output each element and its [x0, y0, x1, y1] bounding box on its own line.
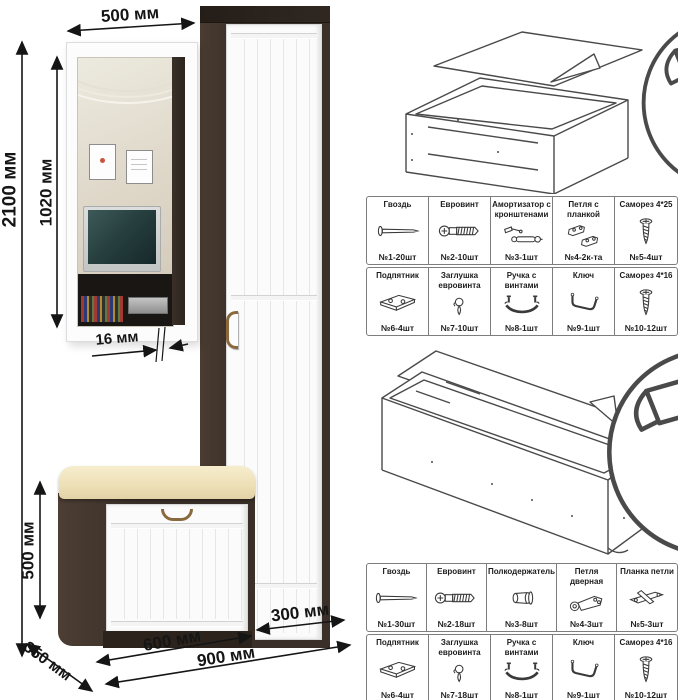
hardware-item: Петля с планкой №4-2к-та: [553, 197, 615, 264]
shelf-pin-icon: [496, 584, 548, 612]
hardware-item-name: Подпятник: [376, 638, 419, 648]
assembly-diagram-cabinet: [372, 334, 678, 560]
screw-icon: [620, 655, 672, 683]
hardware-item: Ключ №9-1шт: [553, 635, 615, 700]
hardware-item: Полкодержатель №3-8шт: [487, 564, 557, 631]
hammer-icon: [644, 16, 678, 189]
hardware-item: Ключ №9-1шт: [553, 268, 615, 335]
thickness-tick: [156, 328, 159, 362]
hinge-plate-icon: [621, 584, 673, 612]
hardware-item: Подпятник №6-4шт: [367, 635, 429, 700]
hardware-item-count: №6-4шт: [381, 690, 414, 700]
cap-icon: [434, 660, 486, 688]
hardware-row: Подпятник №6-4шт Заглушка евровинта №7-1…: [366, 267, 678, 336]
hardware-item-name: Планка петли: [620, 567, 674, 577]
door-hinge-icon: [561, 589, 613, 617]
hardware-item: Саморез 4*16 №10-12шт: [615, 635, 677, 700]
hardware-item-name: Саморез 4*25: [619, 200, 672, 210]
hardware-item-count: №7-18шт: [441, 690, 479, 700]
hardware-item: Подпятник №6-4шт: [367, 268, 429, 335]
back-panel: [434, 32, 642, 86]
hardware-item: Гвоздь №1-30шт: [367, 564, 427, 631]
dimension-arrows-layer: [0, 0, 365, 700]
hardware-item-count: №8-1шт: [505, 690, 538, 700]
assembly-instruction-sheet: 2100 мм 1020 мм 500 мм 16 мм 500 мм 350 …: [0, 0, 680, 700]
hardware-item-name: Заглушка евровинта: [430, 271, 489, 290]
hardware-item: Гвоздь №1-20шт: [367, 197, 429, 264]
hardware-item-count: №4-3шт: [570, 619, 603, 629]
hardware-item-count: №10-12шт: [625, 323, 667, 333]
hardware-item: Ручка с винтами №8-1шт: [491, 268, 553, 335]
hardware-item-count: №5-4шт: [629, 252, 662, 262]
handle-icon: [496, 660, 548, 688]
hexkey-icon: [558, 655, 610, 683]
hardware-item-name: Ручка с винтами: [492, 638, 551, 657]
hexkey-icon: [558, 288, 610, 316]
hardware-item-name: Ключ: [573, 271, 594, 281]
hardware-item: Петля дверная №4-3шт: [557, 564, 617, 631]
hardware-item-name: Заглушка евровинта: [430, 638, 489, 657]
hardware-item-count: №9-1шт: [567, 690, 600, 700]
hardware-item-count: №3-8шт: [505, 619, 538, 629]
hardware-item-name: Ручка с винтами: [492, 271, 551, 290]
hardware-item-name: Петля с планкой: [554, 200, 613, 219]
hardware-item-count: №7-10шт: [441, 323, 479, 333]
screw-icon: [620, 217, 672, 245]
footplate-icon: [372, 655, 424, 683]
hardware-item-count: №5-3шт: [631, 619, 664, 629]
hardware-item: Заглушка евровинта №7-10шт: [429, 268, 491, 335]
dim-mirror-height: 1020 мм: [38, 158, 55, 228]
hinge-with-plate-icon: [558, 222, 610, 250]
carcass-top-rim: [406, 78, 628, 136]
hardware-item-count: №6-4шт: [381, 323, 414, 333]
dim-total-height: 2100 мм: [1, 150, 20, 230]
hardware-item-count: №2-18шт: [438, 619, 476, 629]
hardware-item: Евровинт №2-10шт: [429, 197, 491, 264]
hardware-item: Амортизатор с кронштенами №3-1шт: [491, 197, 553, 264]
hammer-icon: [609, 351, 678, 554]
hardware-item-count: №8-1шт: [505, 323, 538, 333]
euroscrew-icon: [434, 217, 486, 245]
gas-lift-icon: [496, 222, 548, 250]
cap-icon: [434, 293, 486, 321]
hardware-item-count: №1-20шт: [379, 252, 417, 262]
hardware-item-name: Гвоздь: [383, 567, 411, 577]
hardware-item-name: Ключ: [573, 638, 594, 648]
hardware-item-count: №2-10шт: [441, 252, 479, 262]
hardware-row: Гвоздь №1-30шт Евровинт №2-18шт Полкодер…: [366, 563, 678, 632]
hardware-item: Саморез 4*16 №10-12шт: [615, 268, 677, 335]
hardware-item-name: Амортизатор с кронштенами: [492, 200, 551, 219]
hardware-item-name: Подпятник: [376, 271, 419, 281]
hardware-item-name: Евровинт: [440, 200, 479, 210]
dim-bench-height: 500 мм: [20, 516, 37, 586]
hardware-item-count: №4-2к-та: [565, 252, 603, 262]
hardware-item: Ручка с винтами №8-1шт: [491, 635, 553, 700]
hardware-item-name: Саморез 4*16: [619, 271, 672, 281]
hardware-item-name: Петля дверная: [558, 567, 615, 586]
hardware-item-count: №3-1шт: [505, 252, 538, 262]
hardware-item: Планка петли №5-3шт: [617, 564, 677, 631]
hardware-row: Подпятник №6-4шт Заглушка евровинта №7-1…: [366, 634, 678, 700]
handle-icon: [496, 293, 548, 321]
nail-icon: [372, 217, 424, 245]
hardware-item-name: Полкодержатель: [488, 567, 555, 577]
hardware-item-name: Евровинт: [437, 567, 476, 577]
screw-icon: [620, 288, 672, 316]
hardware-row: Гвоздь №1-20шт Евровинт №2-10шт Амортиза…: [366, 196, 678, 265]
hardware-table-2: Гвоздь №1-30шт Евровинт №2-18шт Полкодер…: [366, 563, 678, 700]
hardware-item: Заглушка евровинта №7-18шт: [429, 635, 491, 700]
euroscrew-icon: [430, 584, 482, 612]
hardware-item-count: №1-30шт: [378, 619, 416, 629]
thickness-leader-left: [92, 350, 156, 356]
assembly-diagram-bench: [388, 2, 678, 194]
hardware-item: Саморез 4*25 №5-4шт: [615, 197, 677, 264]
mirror-width-arrow: [68, 23, 194, 31]
hardware-item-count: №9-1шт: [567, 323, 600, 333]
hardware-item: Евровинт №2-18шт: [427, 564, 487, 631]
dim-mirror-width: 500 мм: [94, 4, 165, 26]
thickness-leader-right: [170, 344, 188, 348]
hardware-item-count: №10-12шт: [625, 690, 667, 700]
hardware-table-1: Гвоздь №1-20шт Евровинт №2-10шт Амортиза…: [366, 196, 678, 336]
footplate-icon: [372, 288, 424, 316]
nail-icon: [370, 584, 422, 612]
hardware-item-name: Гвоздь: [384, 200, 412, 210]
thickness-tick: [162, 327, 165, 361]
hardware-item-name: Саморез 4*16: [619, 638, 672, 648]
